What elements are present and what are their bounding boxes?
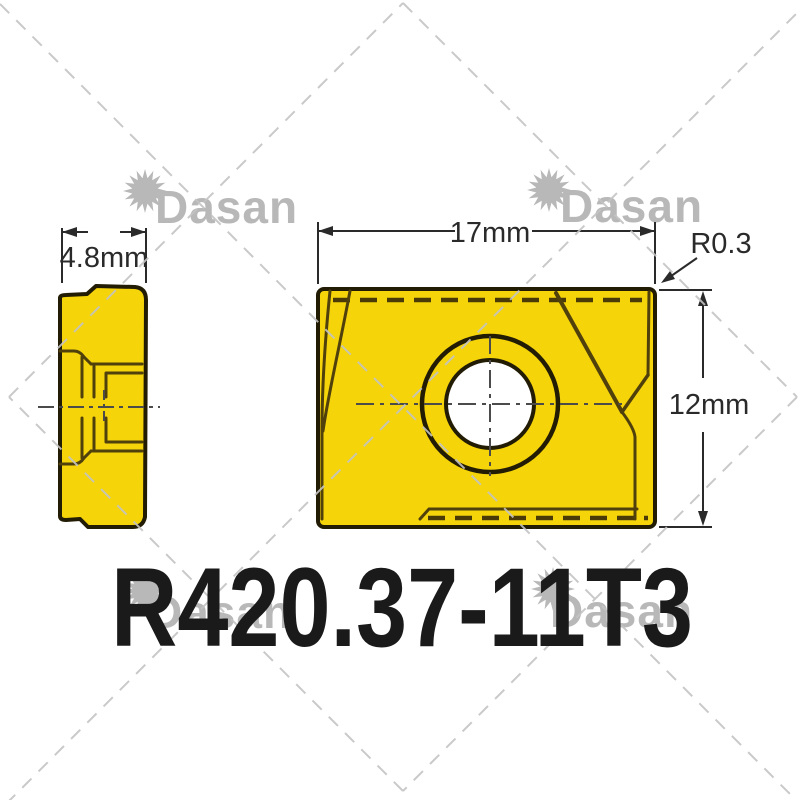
side-width-label: 4.8mm [60, 242, 149, 274]
insert-side-view [38, 286, 160, 527]
watermark-top-left: Dasan [123, 169, 298, 233]
watermark-brand-text: Dasan [155, 181, 298, 233]
product-image: Dasan Dasan Dasan Dasan [0, 0, 800, 800]
corner-radius-label: R0.3 [690, 228, 751, 260]
technical-drawing-canvas: Dasan Dasan Dasan Dasan [0, 0, 800, 800]
watermark-brand-text: Dasan [560, 180, 703, 232]
watermark-top-right: Dasan [527, 168, 703, 232]
product-model-title: R420.37-11T3 [111, 545, 693, 670]
front-width-label: 17mm [450, 217, 531, 249]
front-height-label: 12mm [669, 389, 750, 421]
annotation-corner-radius-leader [661, 258, 697, 283]
right-edge-inner-line [648, 292, 649, 375]
